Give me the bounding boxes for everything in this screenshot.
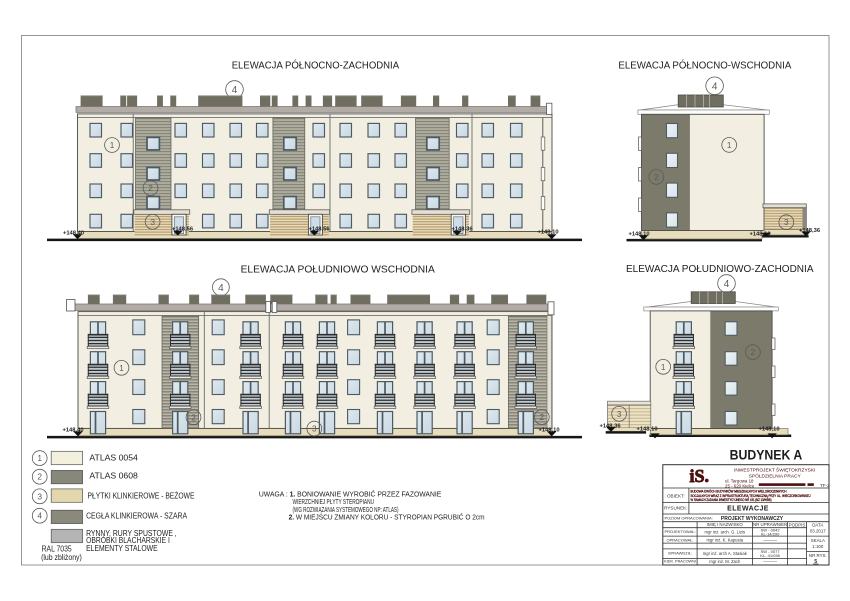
svg-text:1: 1 [661, 363, 666, 372]
svg-text:2: 2 [751, 348, 756, 357]
svg-text:NR RYS.: NR RYS. [809, 553, 827, 558]
svg-text:KIER. PRACOWNI: KIER. PRACOWNI [664, 560, 696, 564]
svg-text:PROJEKT WYKONAWCZY: PROJEKT WYKONAWCZY [721, 516, 784, 522]
svg-text:DATA: DATA [812, 523, 823, 528]
svg-text:PROJEKTOWAŁ:: PROJEKTOWAŁ: [664, 529, 695, 534]
svg-text:25 - 620 Kielce: 25 - 620 Kielce [725, 483, 755, 488]
svg-text:4: 4 [712, 81, 718, 92]
svg-text:———: ——— [763, 559, 777, 564]
svg-text:ATLAS 0054: ATLAS 0054 [89, 453, 138, 462]
svg-text:3: 3 [784, 218, 789, 227]
svg-text:2: 2 [191, 413, 196, 422]
svg-text:RYSUNEK:: RYSUNEK: [664, 506, 687, 511]
svg-text:3: 3 [617, 410, 622, 419]
svg-text:03.2017: 03.2017 [810, 529, 826, 534]
svg-text:TF-2: TF-2 [820, 483, 830, 488]
svg-text:ELEWACJA PÓŁNOCNO-ZACHODNIA: ELEWACJA PÓŁNOCNO-ZACHODNIA [232, 58, 400, 71]
svg-text:2: 2 [654, 173, 659, 182]
svg-text:+148,36: +148,36 [799, 228, 821, 234]
svg-text:3: 3 [150, 218, 155, 227]
svg-text:+148,10: +148,10 [758, 427, 779, 433]
svg-text:PODPIS: PODPIS [789, 523, 806, 528]
svg-text:OPRACOWAŁ:: OPRACOWAŁ: [667, 537, 694, 542]
svg-text:IMIĘ I NAZWISKO: IMIĘ I NAZWISKO [707, 522, 744, 527]
svg-text:KL-14/290: KL-14/290 [761, 531, 780, 536]
svg-text:mgr inż. arch. G. Lizis: mgr inż. arch. G. Lizis [705, 530, 746, 535]
svg-text:mgr inż. arch A. Stasiak: mgr inż. arch A. Stasiak [703, 551, 748, 556]
svg-text:W RAMACH ZADANIA INWESTYCYJNEG: W RAMACH ZADANIA INWESTYCYJNEGO NR 151 (… [691, 498, 773, 502]
svg-text:1: 1 [119, 364, 124, 373]
svg-text:SPRAWDZIŁ:: SPRAWDZIŁ: [668, 551, 692, 556]
svg-text:3: 3 [312, 425, 317, 434]
svg-text:ELEWACJE: ELEWACJE [727, 505, 769, 512]
svg-text:BUDYNEK A: BUDYNEK A [730, 448, 803, 463]
svg-text:mgr inż. M. Zach: mgr inż. M. Zach [709, 559, 741, 564]
svg-text:———: ——— [763, 538, 777, 543]
svg-text:+148,10: +148,10 [636, 427, 657, 433]
svg-text:4: 4 [232, 85, 238, 96]
svg-text:1:100: 1:100 [812, 544, 824, 549]
svg-text:ELEWACJA POŁUDNIOWO-ZACHODNIA: ELEWACJA POŁUDNIOWO-ZACHODNIA [626, 264, 814, 275]
svg-text:1: 1 [727, 141, 732, 150]
svg-text:SKALA: SKALA [811, 538, 825, 543]
svg-text:ATLAS 0608: ATLAS 0608 [89, 472, 138, 481]
svg-text:BUDOWA DWÓCH BUDYNKÓW MIESZKAL: BUDOWA DWÓCH BUDYNKÓW MIESZKALNYCH WIELO… [691, 489, 787, 494]
svg-text:2: 2 [148, 184, 153, 193]
svg-text:2. W MIEJSCU ZMIANY KOLORU - S: 2. W MIEJSCU ZMIANY KOLORU - STYROPIAN P… [289, 512, 485, 521]
svg-text:KL- 41/036: KL- 41/036 [760, 553, 780, 558]
svg-text:mgr inż. K. Kapusta: mgr inż. K. Kapusta [707, 537, 744, 542]
svg-text:(lub zbliżony): (lub zbliżony) [41, 553, 82, 562]
svg-text:4: 4 [37, 511, 42, 521]
svg-text:2: 2 [37, 472, 42, 482]
svg-text:CEGŁA KLINKIEROWA - SZARA: CEGŁA KLINKIEROWA - SZARA [86, 511, 188, 520]
svg-text:ELEWACJA PÓŁNOCNO-WSCHODNIA: ELEWACJA PÓŁNOCNO-WSCHODNIA [618, 58, 791, 71]
svg-text:iS.: iS. [690, 466, 710, 486]
svg-text:4: 4 [218, 283, 224, 294]
svg-text:3: 3 [37, 491, 42, 501]
svg-text:4: 4 [724, 279, 730, 290]
svg-text:1: 1 [37, 453, 42, 463]
svg-text:2: 2 [540, 413, 545, 422]
svg-text:ELEWACJA POŁUDNIOWO WSCHODNIA: ELEWACJA POŁUDNIOWO WSCHODNIA [241, 264, 435, 275]
svg-text:OBIEKT:: OBIEKT: [667, 493, 685, 498]
svg-text:ELEMENTY STALOWE: ELEMENTY STALOWE [86, 544, 158, 553]
svg-text:SPÓŁDZIELNIA PRACY: SPÓŁDZIELNIA PRACY [749, 472, 802, 479]
svg-text:POZIOM OPRACOWANIA:: POZIOM OPRACOWANIA: [665, 516, 713, 521]
svg-text:1: 1 [110, 141, 115, 150]
svg-text:PŁYTKI KLINKIEROWE - BEŻOWE: PŁYTKI KLINKIEROWE - BEŻOWE [88, 492, 195, 501]
